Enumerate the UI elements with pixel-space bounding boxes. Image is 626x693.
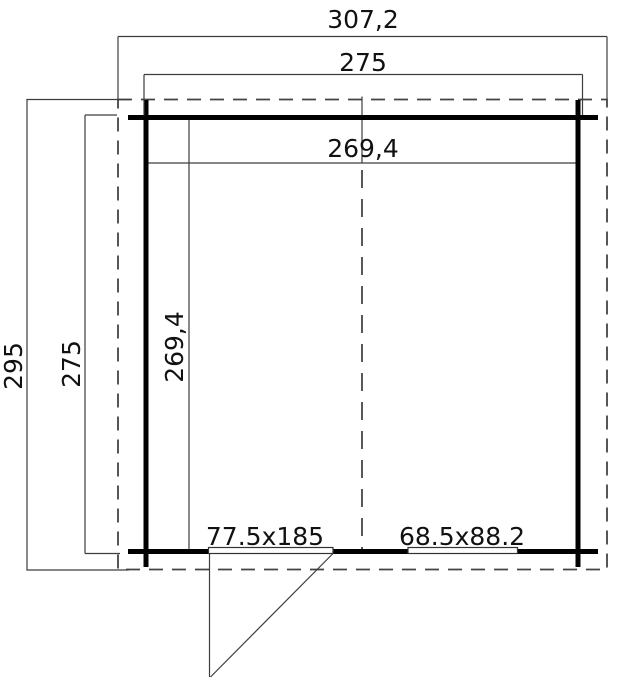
door: 77.5x185 xyxy=(206,522,333,677)
dimension-inner-depth: 269,4 xyxy=(160,120,189,549)
walls xyxy=(128,100,598,567)
dim-text-overall-depth: 295 xyxy=(0,342,28,390)
dim-text-wall-width: 275 xyxy=(339,48,387,77)
dimension-wall-width: 275 xyxy=(144,48,583,115)
dim-text-wall-depth: 275 xyxy=(57,340,86,388)
dimension-wall-depth: 275 xyxy=(57,115,120,554)
window: 68.5x88.2 xyxy=(399,522,525,554)
dim-text-inner-depth: 269,4 xyxy=(160,311,189,383)
dimension-inner-width: 269,4 xyxy=(149,134,576,163)
floor-plan-drawing: 307,2 275 269,4 295 275 269,4 77.5x185 xyxy=(0,0,626,693)
dim-text-inner-width: 269,4 xyxy=(327,134,399,163)
door-swing-line xyxy=(211,554,334,678)
dim-text-overall-width: 307,2 xyxy=(327,5,399,34)
dimension-overall-depth: 295 xyxy=(0,100,130,571)
window-size-label: 68.5x88.2 xyxy=(399,522,525,551)
door-size-label: 77.5x185 xyxy=(206,522,324,551)
